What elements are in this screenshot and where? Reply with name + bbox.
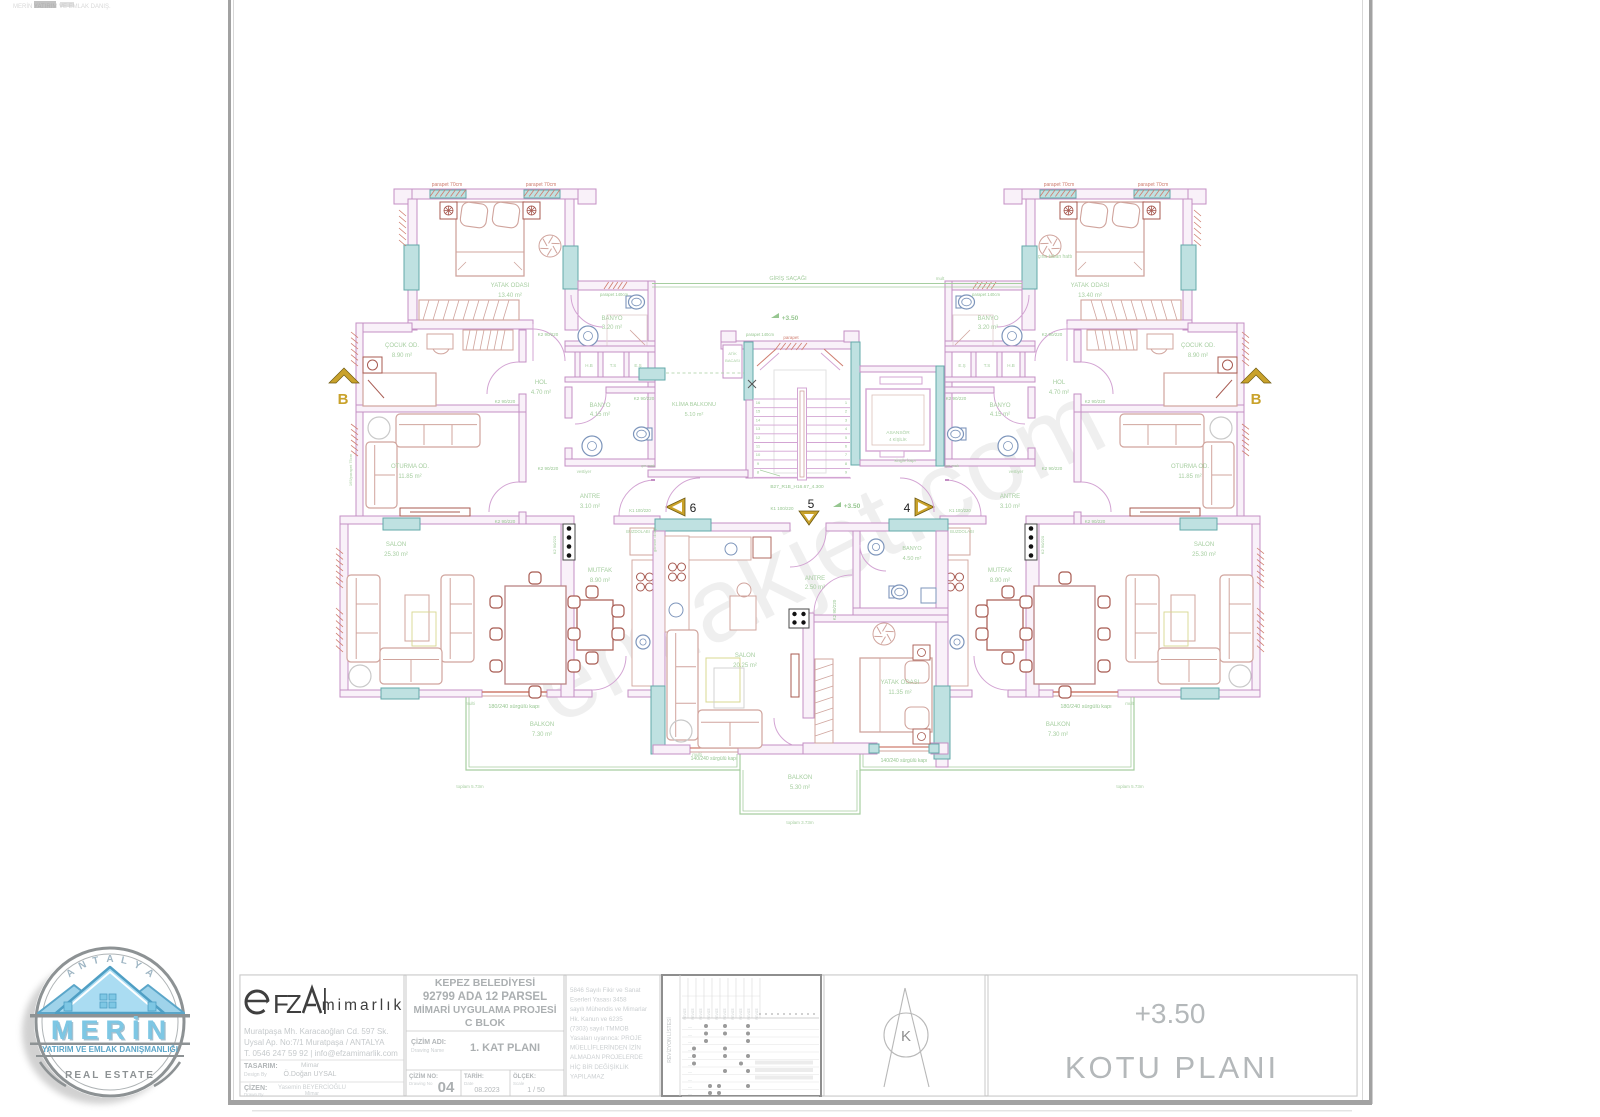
svg-text:Scale: Scale [513, 1081, 525, 1086]
svg-text:20.25 m²: 20.25 m² [733, 663, 757, 669]
svg-text:BANYO: BANYO [589, 403, 610, 409]
svg-text:Design By: Design By [244, 1072, 267, 1078]
svg-text:multi: multi [465, 701, 475, 706]
svg-text:K2 90/220: K2 90/220 [1085, 519, 1106, 524]
svg-text:16: 16 [756, 400, 761, 405]
svg-text:YATIRIM VE EMLAK DANIŞMANLIĞI: YATIRIM VE EMLAK DANIŞMANLIĞI [42, 1045, 178, 1054]
svg-text:—: — [688, 1025, 692, 1030]
svg-text:04: 04 [438, 1079, 455, 1096]
svg-text:+3.50: +3.50 [844, 503, 861, 510]
svg-text:08.2023: 08.2023 [474, 1087, 499, 1094]
svg-text:TARİH:: TARİH: [464, 1073, 484, 1080]
svg-text:MUTFAK: MUTFAK [988, 568, 1012, 574]
svg-text:toplam 5.73m: toplam 5.73m [456, 784, 484, 789]
svg-text:K2 90/220: K2 90/220 [495, 399, 516, 404]
svg-text:—: — [688, 1085, 692, 1090]
svg-text:ÇİZİM ADI:: ÇİZİM ADI: [411, 1038, 446, 1046]
svg-text:YATAK ODASI: YATAK ODASI [1071, 283, 1110, 289]
svg-text:K1 100/220: K1 100/220 [629, 508, 651, 513]
svg-text:4.15 m²: 4.15 m² [590, 412, 610, 418]
svg-text:YATAK ODASI: YATAK ODASI [491, 283, 530, 289]
svg-text:mult: mult [936, 276, 945, 281]
svg-text:ÇİZEN:: ÇİZEN: [244, 1084, 267, 1092]
svg-text:vestiyer: vestiyer [577, 469, 592, 474]
svg-text:K1 100/220: K1 100/220 [949, 508, 971, 513]
svg-text:BACASI: BACASI [725, 358, 740, 363]
svg-text:11.35 m²: 11.35 m² [888, 690, 911, 696]
svg-text:H.B: H.B [585, 363, 593, 368]
svg-text:3.20 m²: 3.20 m² [978, 325, 998, 331]
svg-text:H.B: H.B [1007, 363, 1015, 368]
svg-text:MUTFAK: MUTFAK [588, 568, 612, 574]
svg-text:K2 90/220: K2 90/220 [1042, 466, 1063, 471]
svg-text:Drawing Name: Drawing Name [411, 1048, 444, 1054]
svg-text:HOL: HOL [535, 380, 548, 386]
svg-text:25.30 m²: 25.30 m² [1192, 552, 1216, 558]
svg-text:K2 90/220: K2 90/220 [946, 396, 967, 401]
svg-text:BANYO: BANYO [902, 546, 922, 552]
svg-text:3.20 m²: 3.20 m² [602, 325, 622, 331]
svg-text:ÇOCUK OD.: ÇOCUK OD. [385, 343, 419, 349]
svg-text:E.Ş: E.Ş [958, 363, 965, 368]
svg-text:12: 12 [756, 435, 761, 440]
svg-text:YATAK ODASI: YATAK ODASI [881, 680, 920, 686]
svg-text:10: 10 [756, 452, 761, 457]
svg-text:ALMADAN PROJELERDE: ALMADAN PROJELERDE [570, 1054, 643, 1061]
svg-text:8.90 m²: 8.90 m² [990, 578, 1010, 584]
svg-text:K1 100/220: K1 100/220 [770, 506, 794, 511]
svg-text:ÖLÇEK:: ÖLÇEK: [513, 1073, 536, 1080]
svg-text:B: B [338, 391, 349, 408]
svg-text:parapet 70cm: parapet 70cm [432, 182, 463, 188]
svg-text:BANYO: BANYO [977, 316, 998, 322]
svg-text:parapet 70cm: parapet 70cm [1044, 182, 1075, 188]
svg-text:4 KİŞİLİK: 4 KİŞİLİK [889, 437, 907, 442]
svg-text:K: K [901, 1028, 911, 1045]
svg-text:SALON: SALON [1194, 542, 1214, 548]
svg-text:TASARIM:: TASARIM: [244, 1063, 278, 1070]
svg-text:HOL: HOL [1053, 380, 1066, 386]
svg-text:Yasaları uyarınca: PROJE: Yasaları uyarınca: PROJE [570, 1035, 642, 1042]
svg-text:BUZDOLABI: BUZDOLABI [626, 529, 650, 534]
svg-text:1 / 50: 1 / 50 [527, 1087, 545, 1094]
svg-text:YAPILAMAZ: YAPILAMAZ [570, 1073, 604, 1080]
svg-text:K2 90/220: K2 90/220 [634, 396, 655, 401]
svg-text:8.90 m²: 8.90 m² [392, 353, 412, 359]
svg-text:MİMARİ UYGULAMA PROJESİ: MİMARİ UYGULAMA PROJESİ [414, 1003, 557, 1016]
svg-text:92799 ADA 12 PARSEL: 92799 ADA 12 PARSEL [423, 991, 547, 1003]
svg-text:—: — [688, 1040, 692, 1045]
svg-text:A: A [106, 954, 113, 965]
svg-text:single kapı: single kapı [894, 458, 916, 463]
svg-text:vestiyer: vestiyer [1009, 469, 1024, 474]
svg-text:180/240 sürgülü kapı: 180/240 sürgülü kapı [1060, 704, 1111, 710]
svg-text:parapet 70cm: parapet 70cm [1138, 182, 1169, 188]
svg-text:ANTRE: ANTRE [1000, 494, 1020, 500]
svg-text:SALON: SALON [386, 542, 406, 548]
svg-text:15: 15 [756, 409, 761, 414]
svg-text:K2 90/220: K2 90/220 [495, 519, 516, 524]
svg-text:T. 0546 247 59 92 | info@efz: T. 0546 247 59 92 | info@efzamimarlik.co… [244, 1049, 398, 1058]
svg-text:Muratpaşa Mh. Karacaoğlan Cd.: Muratpaşa Mh. Karacaoğlan Cd. 597 Sk. [244, 1027, 389, 1036]
svg-text:Ö.Doğan UYSAL: Ö.Doğan UYSAL [284, 1070, 337, 1078]
svg-text:+3.50: +3.50 [782, 315, 799, 322]
svg-text:—: — [688, 1077, 692, 1082]
svg-text:4: 4 [904, 501, 911, 515]
svg-text:OTURMA OD.: OTURMA OD. [391, 464, 429, 470]
svg-text:parapet 70cm: parapet 70cm [526, 182, 557, 188]
svg-text:çına taban hattı: çına taban hattı [1038, 254, 1072, 260]
svg-text:(7303) sayılı TMMOB: (7303) sayılı TMMOB [570, 1025, 629, 1032]
svg-text:ÇOCUK OD.: ÇOCUK OD. [1181, 343, 1215, 349]
svg-text:5.10 m²: 5.10 m² [685, 412, 704, 418]
svg-text:MERİN: MERİN [51, 1015, 173, 1045]
svg-text:165/parapet 75cm: 165/parapet 75cm [348, 453, 353, 486]
svg-text:7.30 m²: 7.30 m² [1048, 732, 1068, 738]
svg-text:sayılı Mühendis ve Mimarlar: sayılı Mühendis ve Mimarlar [570, 1006, 647, 1013]
svg-text:parapet 140cm: parapet 140cm [600, 292, 628, 297]
svg-text:—: — [688, 1047, 692, 1052]
svg-text:çm.mak: çm.mak [641, 463, 655, 468]
svg-text:Date: Date [464, 1081, 474, 1086]
svg-text:8.90 m²: 8.90 m² [1188, 353, 1208, 359]
svg-text:Z: Z [286, 989, 302, 1019]
svg-text:2.50 m²: 2.50 m² [805, 585, 825, 591]
svg-text:B: B [1251, 391, 1262, 408]
svg-text:C BLOK: C BLOK [465, 1017, 506, 1029]
svg-text:—: — [688, 1092, 692, 1097]
svg-text:5: 5 [808, 497, 815, 511]
svg-text:Uysal Ap. No:7/1 Muratpaşa: Uysal Ap. No:7/1 Muratpaşa / ANTALYA [244, 1038, 385, 1047]
svg-text:K2 90/220: K2 90/220 [832, 599, 837, 620]
svg-text:çm.mak: çm.mak [945, 463, 959, 468]
svg-text:parapet: parapet [783, 335, 799, 340]
svg-text:parapet 140cm: parapet 140cm [972, 292, 1000, 297]
svg-text:multi: multi [1125, 701, 1135, 706]
svg-text:6: 6 [690, 501, 697, 515]
svg-text:4.70 m²: 4.70 m² [1049, 390, 1069, 396]
svg-text:multi: multi [692, 752, 702, 757]
svg-text:ATİK: ATİK [728, 351, 737, 356]
svg-text:B27_R1B_H16.67_4.300: B27_R1B_H16.67_4.300 [770, 484, 824, 490]
svg-text:—: — [688, 1032, 692, 1037]
svg-text:E.Ş: E.Ş [634, 363, 641, 368]
svg-text:BALKON: BALKON [1046, 722, 1070, 728]
svg-text:KOTU PLANI: KOTU PLANI [1065, 1050, 1279, 1085]
svg-text:11.85 m²: 11.85 m² [1178, 474, 1201, 480]
svg-text:OTURMA OD.: OTURMA OD. [1171, 464, 1209, 470]
svg-text:3.10 m²: 3.10 m² [580, 504, 600, 510]
svg-text:4.50 m²: 4.50 m² [903, 556, 922, 562]
svg-text:BUZDOLABI: BUZDOLABI [950, 529, 974, 534]
svg-text:ÇİZİM NO:: ÇİZİM NO: [409, 1073, 438, 1080]
svg-text:KLİMA BALKONU: KLİMA BALKONU [672, 401, 716, 408]
svg-text:T.S: T.S [610, 363, 617, 368]
svg-text:Mimar: Mimar [305, 1091, 319, 1097]
svg-text:13.40 m²: 13.40 m² [498, 293, 522, 299]
svg-text:parapet 140cm: parapet 140cm [746, 332, 774, 337]
svg-text:13.40 m²: 13.40 m² [1078, 293, 1102, 299]
svg-text:180/240 sürgülü kapı: 180/240 sürgülü kapı [488, 704, 539, 710]
svg-text:5.30 m²: 5.30 m² [790, 785, 810, 791]
svg-text:Drawn By: Drawn By [244, 1092, 264, 1097]
svg-text:gömme dolap: gömme dolap [652, 527, 657, 552]
svg-text:BANYO: BANYO [601, 316, 622, 322]
svg-text:K2 90/220: K2 90/220 [1042, 332, 1063, 337]
svg-text:K2 90/220: K2 90/220 [1085, 399, 1106, 404]
svg-text:K2 90/220: K2 90/220 [552, 535, 557, 554]
svg-text:REVİZYON LİSTESİ: REVİZYON LİSTESİ [666, 1017, 673, 1063]
svg-text:T.S: T.S [984, 363, 991, 368]
svg-text:MÜELLİFLERİNDEN İZİN: MÜELLİFLERİNDEN İZİN [570, 1045, 641, 1052]
svg-text:14: 14 [756, 417, 761, 422]
svg-text:K2 90/220: K2 90/220 [538, 332, 559, 337]
svg-text:3.10 m²: 3.10 m² [1000, 504, 1020, 510]
svg-text:Drawing No: Drawing No [409, 1081, 433, 1086]
svg-text:toplam 5.73m: toplam 5.73m [1116, 784, 1144, 789]
svg-text:BALKON: BALKON [788, 775, 812, 781]
svg-text:BANYO: BANYO [989, 403, 1010, 409]
svg-text:ASANSÖR: ASANSÖR [886, 429, 910, 436]
svg-text:4.70 m²: 4.70 m² [531, 390, 551, 396]
svg-text:5846 Sayılı Fikir ve Sanat: 5846 Sayılı Fikir ve Sanat [570, 987, 641, 994]
svg-text:8.90 m²: 8.90 m² [590, 578, 610, 584]
svg-text:Eserleri Yasası 3458: Eserleri Yasası 3458 [570, 997, 627, 1004]
svg-text:Hk. Kanun ve 6235: Hk. Kanun ve 6235 [570, 1016, 623, 1023]
svg-text:1. KAT PLANI: 1. KAT PLANI [470, 1042, 540, 1054]
svg-text:ANTRE: ANTRE [580, 494, 600, 500]
svg-text:11.85 m²: 11.85 m² [398, 474, 421, 480]
svg-text:+3.50: +3.50 [1135, 998, 1206, 1029]
svg-text:—: — [688, 1070, 692, 1075]
svg-text:25.30 m²: 25.30 m² [384, 552, 408, 558]
svg-text:Mimar: Mimar [301, 1062, 320, 1069]
svg-text:GİRİŞ SAÇAĞI: GİRİŞ SAÇAĞI [769, 275, 807, 282]
svg-text:K2 90/220: K2 90/220 [1040, 535, 1045, 554]
svg-text:HİÇ BİR DEĞİŞİKLİK: HİÇ BİR DEĞİŞİKLİK [570, 1064, 630, 1071]
svg-text:ANTRE: ANTRE [805, 576, 825, 582]
svg-text:Yasemin BEYERCİOĞLU: Yasemin BEYERCİOĞLU [278, 1084, 346, 1091]
svg-text:4.15 m²: 4.15 m² [990, 412, 1010, 418]
svg-text:—: — [688, 1055, 692, 1060]
svg-text:toplam 3.73m: toplam 3.73m [786, 820, 814, 825]
svg-text:BALKON: BALKON [530, 722, 554, 728]
svg-text:—: — [688, 1062, 692, 1067]
svg-text:K2 90/220: K2 90/220 [538, 466, 559, 471]
svg-text:SALON: SALON [735, 653, 755, 659]
svg-text:KEPEZ BELEDİYESİ: KEPEZ BELEDİYESİ [435, 976, 535, 989]
svg-text:140/240 sürgülü kapı: 140/240 sürgülü kapı [881, 758, 928, 764]
svg-text:REAL ESTATE: REAL ESTATE [65, 1070, 155, 1081]
svg-text:mimarlık: mimarlık [322, 997, 405, 1014]
svg-text:7.30 m²: 7.30 m² [532, 732, 552, 738]
svg-text:13: 13 [756, 426, 761, 431]
